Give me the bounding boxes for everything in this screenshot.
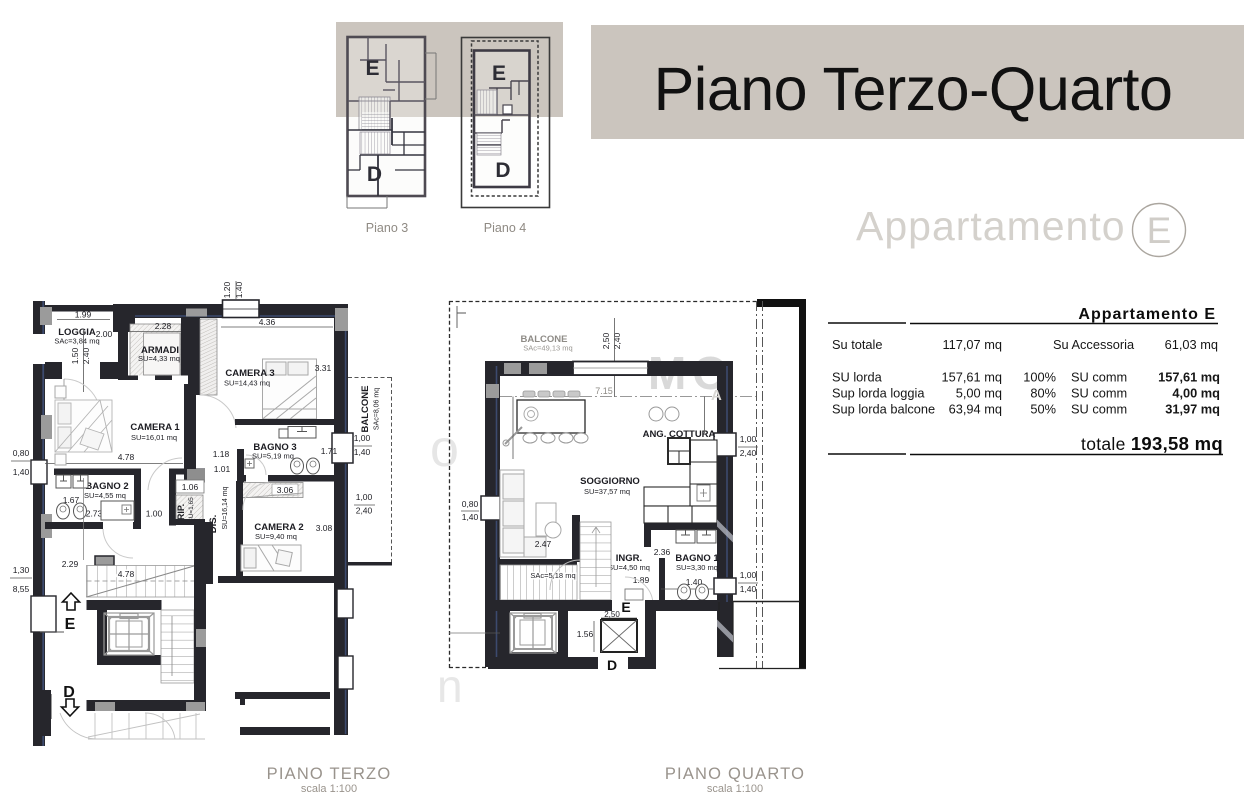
svg-text:Sup lorda loggia: Sup lorda loggia xyxy=(832,386,925,401)
svg-text:D: D xyxy=(607,657,617,673)
svg-text:1.71: 1.71 xyxy=(321,446,338,456)
svg-text:Piano 3: Piano 3 xyxy=(366,221,408,235)
svg-text:2,40: 2,40 xyxy=(612,332,622,349)
svg-text:1.50: 1.50 xyxy=(70,347,80,364)
svg-text:1.18: 1.18 xyxy=(213,449,230,459)
svg-text:Su totale: Su totale xyxy=(832,337,883,352)
svg-text:63,94 mq: 63,94 mq xyxy=(949,402,1002,417)
svg-text:SAc=8,06 mq: SAc=8,06 mq xyxy=(374,388,381,430)
svg-text:3.31: 3.31 xyxy=(315,363,332,373)
svg-text:E: E xyxy=(621,599,630,615)
svg-text:SU=4,33 mq: SU=4,33 mq xyxy=(138,354,180,363)
svg-text:SU comm: SU comm xyxy=(1071,370,1127,385)
svg-text:1,40: 1,40 xyxy=(354,447,371,457)
svg-text:2.73: 2.73 xyxy=(86,509,103,519)
svg-text:5,00 mq: 5,00 mq xyxy=(956,386,1002,401)
svg-text:4.78: 4.78 xyxy=(118,452,135,462)
svg-text:1.00: 1.00 xyxy=(146,509,163,519)
svg-text:2,40: 2,40 xyxy=(740,448,757,458)
svg-text:SU=14,43 mq: SU=14,43 mq xyxy=(224,379,270,388)
svg-text:SU=4,55 mq: SU=4,55 mq xyxy=(84,491,126,500)
svg-text:2,40: 2,40 xyxy=(356,506,373,516)
svg-text:SU comm: SU comm xyxy=(1071,386,1127,401)
svg-text:1,30: 1,30 xyxy=(13,565,30,575)
svg-text:Appartamento E: Appartamento E xyxy=(1078,306,1216,323)
svg-text:o: o xyxy=(430,420,459,478)
svg-text:SAc=49,13 mq: SAc=49,13 mq xyxy=(523,344,572,353)
svg-text:CAMERA 3: CAMERA 3 xyxy=(225,368,274,379)
svg-text:1.06: 1.06 xyxy=(182,482,199,492)
svg-text:PIANO QUARTO: PIANO QUARTO xyxy=(665,765,805,783)
svg-text:SOGGIORNO: SOGGIORNO xyxy=(580,476,640,487)
svg-text:100%: 100% xyxy=(1023,370,1056,385)
svg-text:3.08: 3.08 xyxy=(316,523,333,533)
svg-text:scala 1:100: scala 1:100 xyxy=(301,783,357,795)
svg-text:2.28: 2.28 xyxy=(155,321,172,331)
svg-text:3.06: 3.06 xyxy=(277,485,294,495)
svg-text:2,50: 2,50 xyxy=(601,332,611,349)
svg-text:D: D xyxy=(367,163,382,186)
svg-text:0,80: 0,80 xyxy=(462,499,479,509)
svg-text:1,40: 1,40 xyxy=(462,512,479,522)
svg-text:SU=1,65: SU=1,65 xyxy=(188,497,195,523)
svg-text:A: A xyxy=(711,387,722,404)
svg-text:SU comm: SU comm xyxy=(1071,402,1127,417)
svg-text:1.89: 1.89 xyxy=(633,575,650,585)
svg-text:PIANO TERZO: PIANO TERZO xyxy=(267,765,392,783)
svg-text:1,40: 1,40 xyxy=(13,467,30,477)
svg-text:SU=16,14 mq: SU=16,14 mq xyxy=(222,486,229,529)
svg-text:1,00: 1,00 xyxy=(356,492,373,502)
svg-text:SU=5,19 mq: SU=5,19 mq xyxy=(252,452,294,461)
svg-text:4.78: 4.78 xyxy=(118,569,135,579)
svg-text:SAc=3,84 mq: SAc=3,84 mq xyxy=(54,337,99,346)
svg-text:80%: 80% xyxy=(1030,386,1056,401)
svg-text:4.36: 4.36 xyxy=(259,317,276,327)
svg-text:2.29: 2.29 xyxy=(62,559,79,569)
svg-text:totale 193,58 mq: totale 193,58 mq xyxy=(1081,433,1223,454)
svg-text:157,61 mq: 157,61 mq xyxy=(942,370,1002,385)
svg-text:1,00: 1,00 xyxy=(740,434,757,444)
svg-text:Sup lorda balcone: Sup lorda balcone xyxy=(832,402,935,417)
svg-text:SU=3,30 mq: SU=3,30 mq xyxy=(676,563,718,572)
svg-text:4,00 mq: 4,00 mq xyxy=(1172,386,1220,401)
svg-text:SU lorda: SU lorda xyxy=(832,370,883,385)
svg-text:50%: 50% xyxy=(1030,402,1056,417)
svg-text:1,40: 1,40 xyxy=(740,584,757,594)
svg-text:2.40: 2.40 xyxy=(81,347,91,364)
svg-text:SAc=5,18 mq: SAc=5,18 mq xyxy=(530,571,575,580)
svg-text:2.36: 2.36 xyxy=(654,547,671,557)
svg-text:Appartamento: Appartamento xyxy=(856,203,1126,249)
svg-text:1,00: 1,00 xyxy=(354,433,371,443)
svg-text:1,00: 1,00 xyxy=(740,570,757,580)
svg-text:SU=9,40 mq: SU=9,40 mq xyxy=(255,532,297,541)
svg-text:E: E xyxy=(65,616,76,633)
svg-text:117,07 mq: 117,07 mq xyxy=(942,337,1002,352)
svg-text:SU=16,01 mq: SU=16,01 mq xyxy=(131,433,177,442)
svg-text:CAMERA 1: CAMERA 1 xyxy=(130,422,180,433)
svg-text:1.20: 1.20 xyxy=(222,281,232,298)
svg-text:BALCONE: BALCONE xyxy=(360,386,371,433)
svg-text:0,80: 0,80 xyxy=(13,448,30,458)
svg-text:2,50: 2,50 xyxy=(604,610,620,619)
svg-text:SU=4,50 mq: SU=4,50 mq xyxy=(608,563,650,572)
svg-text:E: E xyxy=(365,57,379,80)
svg-text:8,55: 8,55 xyxy=(13,584,30,594)
svg-text:RIP.: RIP. xyxy=(176,504,186,520)
svg-text:E: E xyxy=(1147,210,1172,251)
svg-text:Su Accessoria: Su Accessoria xyxy=(1053,337,1135,352)
svg-text:1.99: 1.99 xyxy=(75,310,92,320)
svg-text:E: E xyxy=(492,62,506,85)
svg-text:2.00: 2.00 xyxy=(96,329,113,339)
svg-text:31,97 mq: 31,97 mq xyxy=(1165,402,1220,417)
svg-text:61,03 mq: 61,03 mq xyxy=(1165,337,1218,352)
svg-text:2.47: 2.47 xyxy=(535,539,552,549)
svg-text:SU=37,57 mq: SU=37,57 mq xyxy=(584,487,630,496)
svg-text:157,61 mq: 157,61 mq xyxy=(1158,370,1220,385)
svg-text:7.15: 7.15 xyxy=(595,386,613,396)
svg-text:1.01: 1.01 xyxy=(214,464,231,474)
svg-text:D: D xyxy=(495,159,510,182)
svg-text:1.40: 1.40 xyxy=(234,281,244,298)
svg-text:scala 1:100: scala 1:100 xyxy=(707,783,763,795)
svg-text:Piano 4: Piano 4 xyxy=(484,221,526,235)
svg-text:Piano Terzo-Quarto: Piano Terzo-Quarto xyxy=(654,55,1173,123)
svg-text:1.56: 1.56 xyxy=(577,629,594,639)
